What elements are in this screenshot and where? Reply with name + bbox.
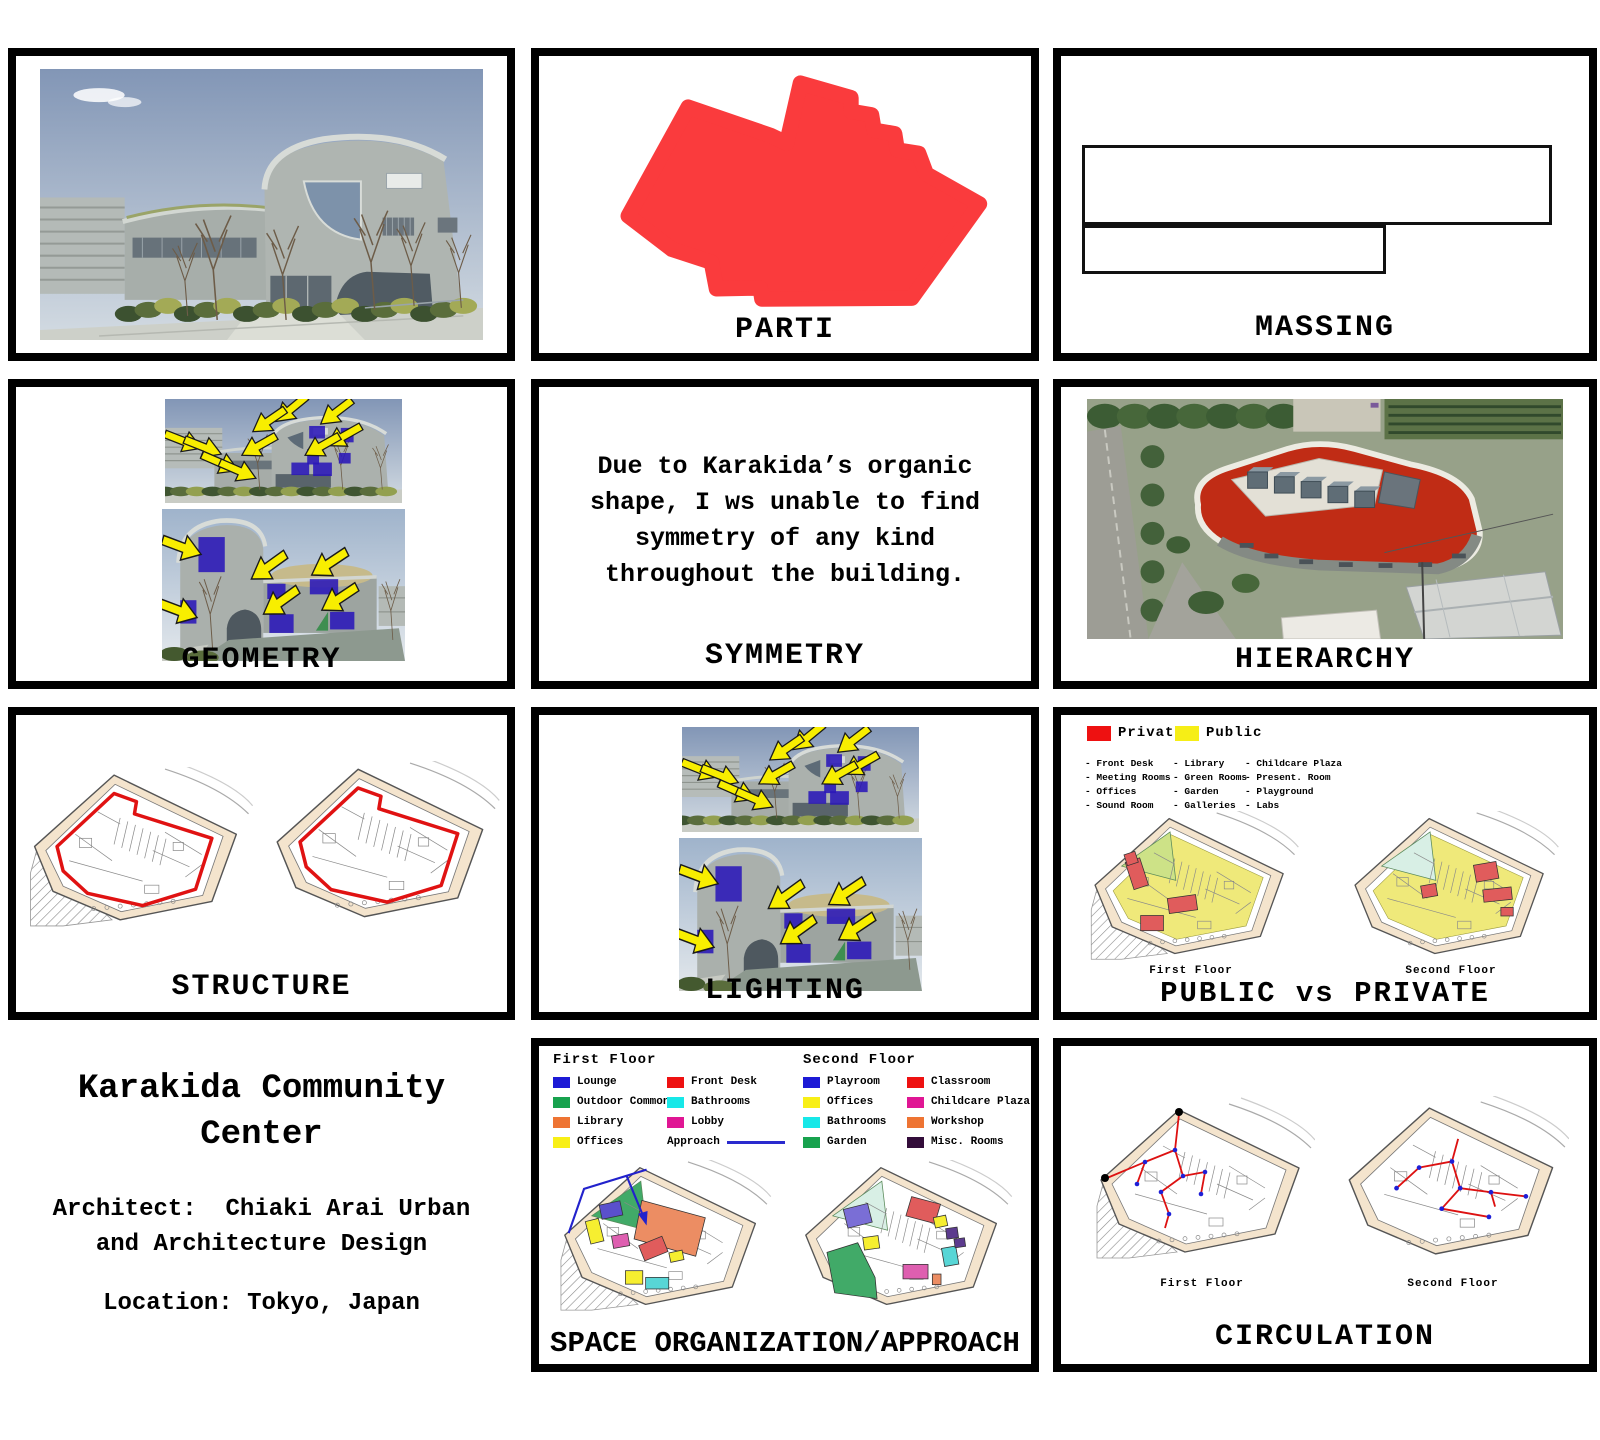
hierarchy-panel: HIERARCHY (1053, 379, 1597, 689)
so-sf-garden: Garden (803, 1136, 867, 1148)
symmetry-panel: Due to Karakida’s organic shape, I ws un… (531, 379, 1039, 689)
so-sf-childcare-plaza: Childcare Plaza (907, 1096, 1030, 1108)
architect-line2: and Architecture Design (8, 1231, 515, 1258)
structure-panel: STRUCTURE (8, 707, 515, 1020)
outdoor-common-swatch (553, 1097, 570, 1108)
public-label: Public (1206, 725, 1262, 741)
massing-label: MASSING (1061, 311, 1589, 345)
building-photo (40, 69, 483, 340)
so-sf-workshop: Workshop (907, 1116, 984, 1128)
so-sf-playroom: Playroom (803, 1076, 880, 1088)
parti-label: PARTI (539, 313, 1031, 347)
private-items: - Front Desk - Meeting Rooms - Offices -… (1085, 757, 1171, 813)
lounge-swatch (553, 1077, 570, 1088)
legend-public: Public (1175, 725, 1262, 741)
so-ff-lobby: Lobby (667, 1116, 724, 1128)
geometry-label: GEOMETRY (16, 643, 507, 677)
so-first-floor-title: First Floor (553, 1052, 656, 1068)
private-label: Private (1118, 725, 1184, 741)
public-private-plan-first (1075, 811, 1307, 963)
sf-offices-swatch (803, 1097, 820, 1108)
so-sf-misc-rooms: Misc. Rooms (907, 1136, 1004, 1148)
so-ff-library: Library (553, 1116, 623, 1128)
so-ff-bathrooms: Bathrooms (667, 1096, 750, 1108)
exterior-photo-panel (8, 48, 515, 361)
public-private-label: PUBLIC vs PRIVATE (1061, 977, 1589, 1010)
geometry-photo-corner (162, 509, 405, 661)
geometry-panel: GEOMETRY (8, 379, 515, 689)
public-private-plan-second (1327, 811, 1575, 963)
offices-swatch (553, 1137, 570, 1148)
so-ff-outdoor-common: Outdoor Common (553, 1096, 669, 1108)
bathrooms-swatch (667, 1097, 684, 1108)
lighting-photo-front (682, 727, 919, 832)
lighting-photo-corner (679, 838, 922, 991)
location-line: Location: Tokyo, Japan (8, 1290, 515, 1317)
pp-second-floor-label: Second Floor (1327, 965, 1575, 977)
project-title: Karakida Community Center (8, 1066, 515, 1158)
pp-first-floor-label: First Floor (1075, 965, 1307, 977)
lighting-label: LIGHTING (539, 974, 1031, 1008)
structure-label: STRUCTURE (16, 970, 507, 1004)
space-org-label: SPACE ORGANIZATION/APPROACH (539, 1327, 1031, 1360)
lobby-swatch (667, 1117, 684, 1128)
childcare-plaza-swatch (907, 1097, 924, 1108)
garden-swatch (803, 1137, 820, 1148)
symmetry-label: SYMMETRY (539, 639, 1031, 673)
parti-shape (545, 60, 1025, 317)
private-swatch (1087, 726, 1111, 741)
symmetry-note: Due to Karakida’s organic shape, I ws un… (565, 449, 1005, 593)
circulation-label: CIRCULATION (1061, 1320, 1589, 1354)
geometry-photo-front (165, 399, 402, 503)
public-swatch (1175, 726, 1199, 741)
aerial-photo-red-roof (1087, 399, 1563, 639)
space-organization-panel: First Floor Lounge Outdoor Common Librar… (531, 1038, 1039, 1372)
workshop-swatch (907, 1117, 924, 1128)
circulation-panel: First Floor Second Floor CIRCULATION (1053, 1038, 1597, 1372)
massing-panel: MASSING (1053, 48, 1597, 361)
space-org-plan-first (549, 1160, 775, 1314)
so-ff-approach: Approach (667, 1136, 785, 1148)
legend-private: Private (1087, 725, 1184, 741)
circ-second-floor-label: Second Floor (1337, 1278, 1569, 1290)
so-ff-offices: Offices (553, 1136, 623, 1148)
library-swatch (553, 1117, 570, 1128)
playroom-swatch (803, 1077, 820, 1088)
so-ff-front-desk: Front Desk (667, 1076, 757, 1088)
circ-first-floor-label: First Floor (1089, 1278, 1315, 1290)
so-second-floor-title: Second Floor (803, 1052, 916, 1068)
massing-block-upper (1082, 145, 1552, 225)
sf-bathrooms-swatch (803, 1117, 820, 1128)
circulation-plan-first (1089, 1096, 1315, 1268)
architect-line1: Architect: Chiaki Arai Urban (8, 1196, 515, 1223)
massing-block-lower (1082, 225, 1386, 274)
hierarchy-label: HIERARCHY (1061, 643, 1589, 677)
misc-rooms-swatch (907, 1137, 924, 1148)
space-org-plan-second (785, 1160, 1021, 1314)
parti-panel: PARTI (531, 48, 1039, 361)
public-private-panel: Private Public - Front Desk - Meeting Ro… (1053, 707, 1597, 1020)
approach-line (727, 1141, 785, 1144)
structure-plan-second-floor (262, 761, 502, 927)
structure-plan-first-floor (20, 767, 255, 930)
public-items-a: - Library - Green Rooms - Garden - Galle… (1173, 757, 1247, 813)
so-sf-offices: Offices (803, 1096, 873, 1108)
lighting-panel: LIGHTING (531, 707, 1039, 1020)
so-sf-bathrooms: Bathrooms (803, 1116, 886, 1128)
so-sf-classroom: Classroom (907, 1076, 990, 1088)
analysis-board: PARTI MASSING GEOMETRY Due to Karakida’s… (0, 0, 1600, 1440)
circulation-plan-second (1337, 1096, 1569, 1268)
title-block: Karakida Community Center Architect: Chi… (8, 1038, 515, 1372)
front-desk-swatch (667, 1077, 684, 1088)
so-ff-lounge: Lounge (553, 1076, 617, 1088)
classroom-swatch (907, 1077, 924, 1088)
public-items-b: - Childcare Plaza - Present. Room - Play… (1245, 757, 1342, 813)
